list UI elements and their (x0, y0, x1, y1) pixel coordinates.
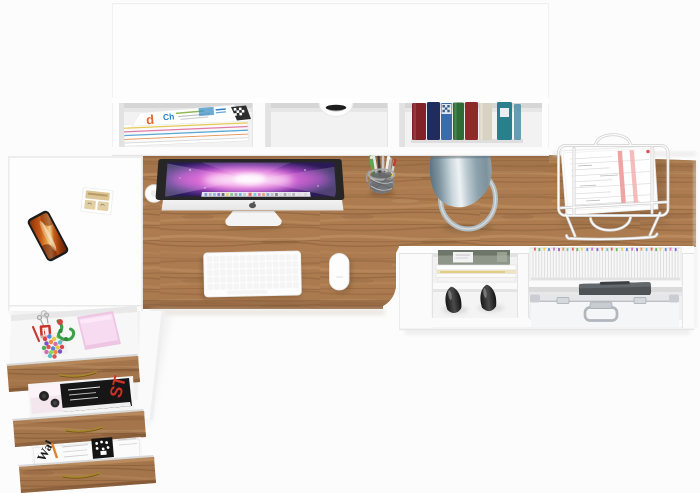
svg-text:d: d (145, 112, 154, 128)
svg-text:Ch: Ch (163, 111, 175, 122)
